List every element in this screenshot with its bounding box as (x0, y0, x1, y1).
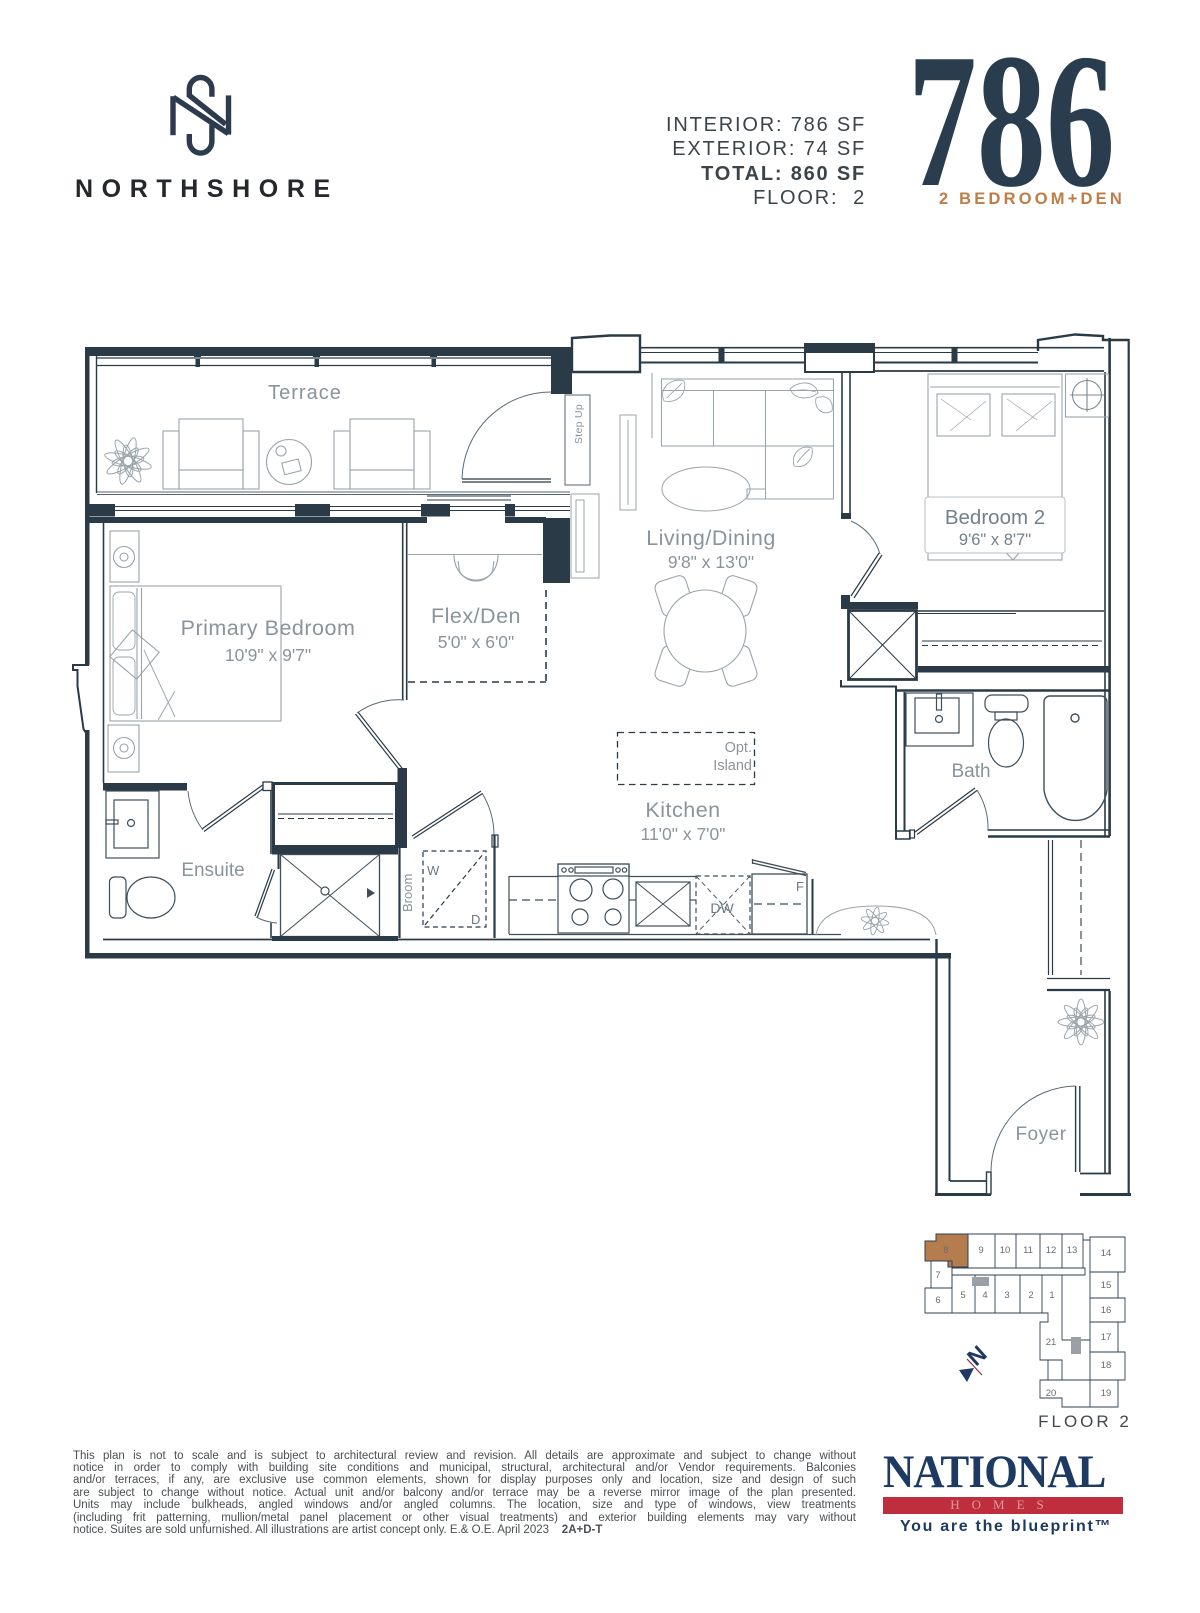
svg-text:Primary Bedroom: Primary Bedroom (181, 616, 356, 640)
svg-text:Foyer: Foyer (1015, 1124, 1066, 1145)
svg-text:DW: DW (710, 900, 734, 916)
svg-text:10: 10 (1000, 1245, 1011, 1256)
svg-text:4: 4 (982, 1290, 987, 1301)
svg-text:13: 13 (1067, 1245, 1078, 1256)
svg-text:Island: Island (713, 758, 752, 774)
svg-text:Step Up: Step Up (573, 404, 585, 444)
svg-text:Broom: Broom (400, 874, 415, 912)
svg-text:5: 5 (960, 1290, 965, 1301)
svg-text:11'0" x 7'0": 11'0" x 7'0" (641, 824, 726, 844)
svg-text:Terrace: Terrace (268, 382, 342, 404)
svg-text:N: N (962, 1340, 992, 1370)
svg-text:10'9" x 9'7": 10'9" x 9'7" (225, 645, 311, 665)
svg-text:3: 3 (1004, 1290, 1009, 1301)
svg-text:9: 9 (978, 1245, 983, 1256)
svg-text:14: 14 (1101, 1248, 1112, 1259)
svg-text:11: 11 (1023, 1245, 1033, 1256)
svg-text:Bedroom 2: Bedroom 2 (945, 506, 1045, 529)
svg-text:19: 19 (1101, 1388, 1112, 1399)
svg-text:Ensuite: Ensuite (181, 860, 244, 881)
svg-text:Flex/Den: Flex/Den (431, 604, 521, 628)
svg-text:Opt.: Opt. (725, 740, 752, 756)
svg-text:FLOOR 2: FLOOR 2 (1038, 1412, 1132, 1431)
svg-text:Living/Dining: Living/Dining (646, 526, 776, 550)
svg-text:7: 7 (935, 1270, 940, 1281)
svg-text:1: 1 (1049, 1290, 1054, 1301)
svg-text:5'0" x 6'0": 5'0" x 6'0" (438, 632, 515, 652)
svg-text:17: 17 (1101, 1332, 1112, 1343)
svg-text:9'8" x 13'0": 9'8" x 13'0" (668, 552, 754, 572)
svg-text:9'6" x 8'7": 9'6" x 8'7" (959, 531, 1031, 549)
svg-text:16: 16 (1101, 1305, 1112, 1316)
svg-text:12: 12 (1046, 1245, 1057, 1256)
svg-text:18: 18 (1101, 1360, 1112, 1371)
svg-text:15: 15 (1101, 1280, 1112, 1291)
svg-text:2: 2 (1028, 1290, 1033, 1301)
svg-text:Bath: Bath (951, 761, 990, 782)
svg-text:20: 20 (1046, 1388, 1057, 1399)
svg-text:8: 8 (943, 1245, 948, 1256)
svg-text:Kitchen: Kitchen (645, 798, 720, 822)
svg-text:6: 6 (935, 1295, 940, 1306)
svg-text:F: F (796, 879, 804, 894)
svg-text:21: 21 (1046, 1337, 1057, 1348)
svg-text:W: W (427, 863, 440, 878)
svg-text:D: D (471, 912, 480, 927)
